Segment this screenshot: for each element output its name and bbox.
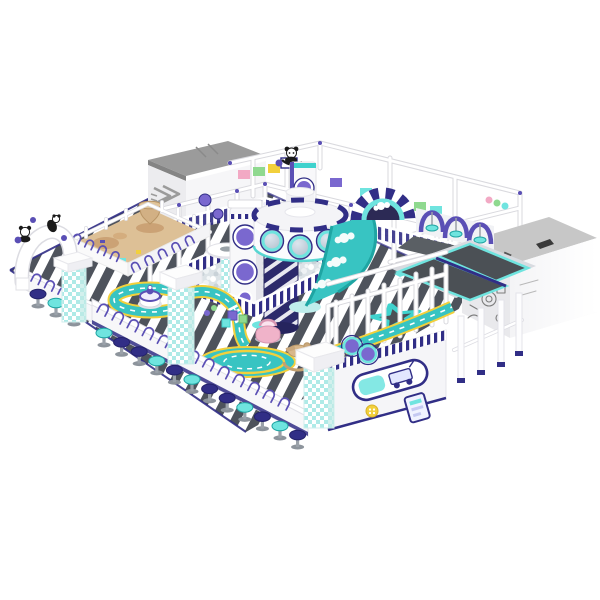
arch-tunnel (356, 193, 410, 220)
playground-svg: Isometric 3D render of a space-themed in… (0, 0, 600, 600)
panda-figure (15, 226, 32, 244)
playground-render: Isometric 3D render of a space-themed in… (0, 0, 600, 600)
yellow-button-decal (366, 405, 378, 417)
